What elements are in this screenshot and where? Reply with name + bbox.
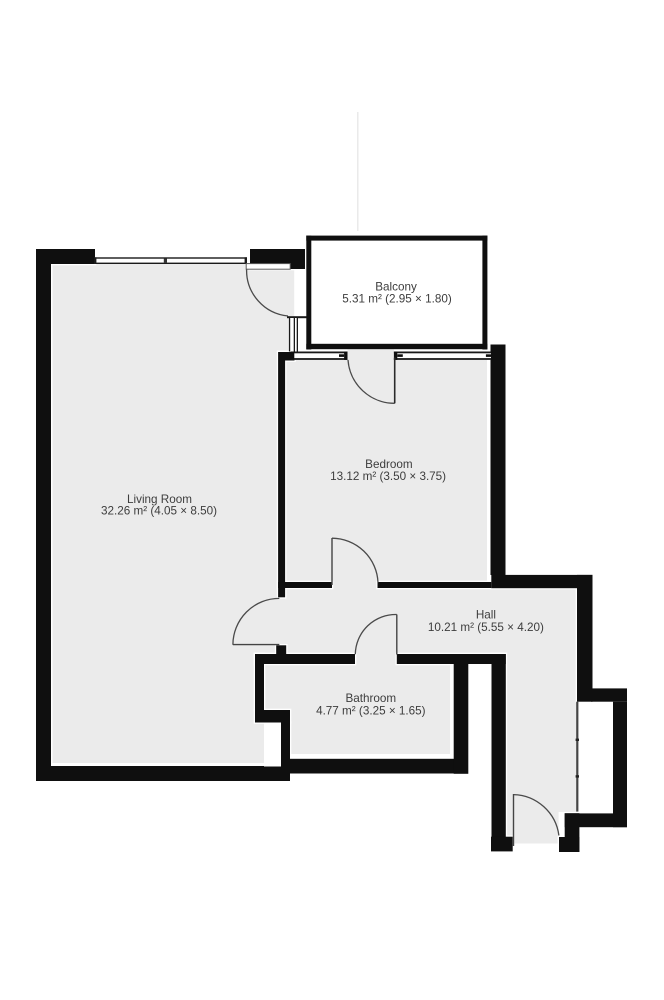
- svg-text:5.31 m² (2.95 × 1.80): 5.31 m² (2.95 × 1.80): [342, 292, 452, 305]
- svg-text:32.26 m² (4.05 × 8.50): 32.26 m² (4.05 × 8.50): [101, 505, 217, 518]
- svg-text:10.21 m² (5.55 × 4.20): 10.21 m² (5.55 × 4.20): [428, 621, 544, 634]
- svg-text:13.12 m² (3.50 × 3.75): 13.12 m² (3.50 × 3.75): [330, 470, 446, 483]
- svg-text:4.77 m² (3.25 × 1.65): 4.77 m² (3.25 × 1.65): [316, 705, 426, 718]
- svg-text:Hall: Hall: [476, 609, 496, 622]
- svg-text:Bathroom: Bathroom: [345, 692, 396, 705]
